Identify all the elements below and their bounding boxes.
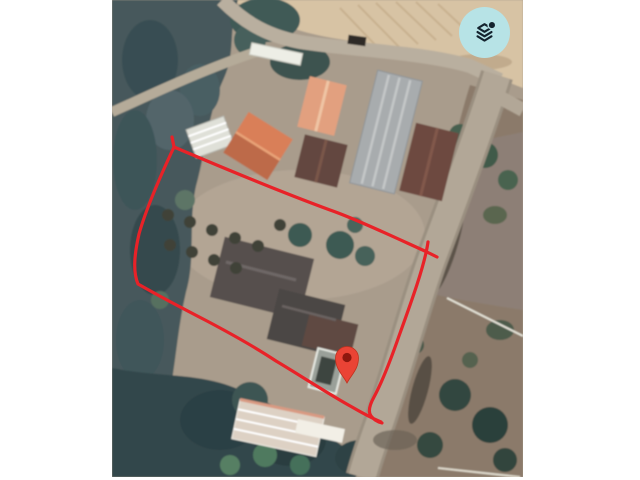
layers-button[interactable] [459, 7, 510, 58]
satellite-map[interactable] [112, 0, 523, 477]
layers-icon [471, 19, 498, 46]
imagery-layer [112, 0, 523, 477]
dot-badge [489, 22, 495, 28]
page-background: { "page": { "background_color": "#ffffff… [0, 0, 640, 480]
pin-hole [342, 353, 351, 362]
